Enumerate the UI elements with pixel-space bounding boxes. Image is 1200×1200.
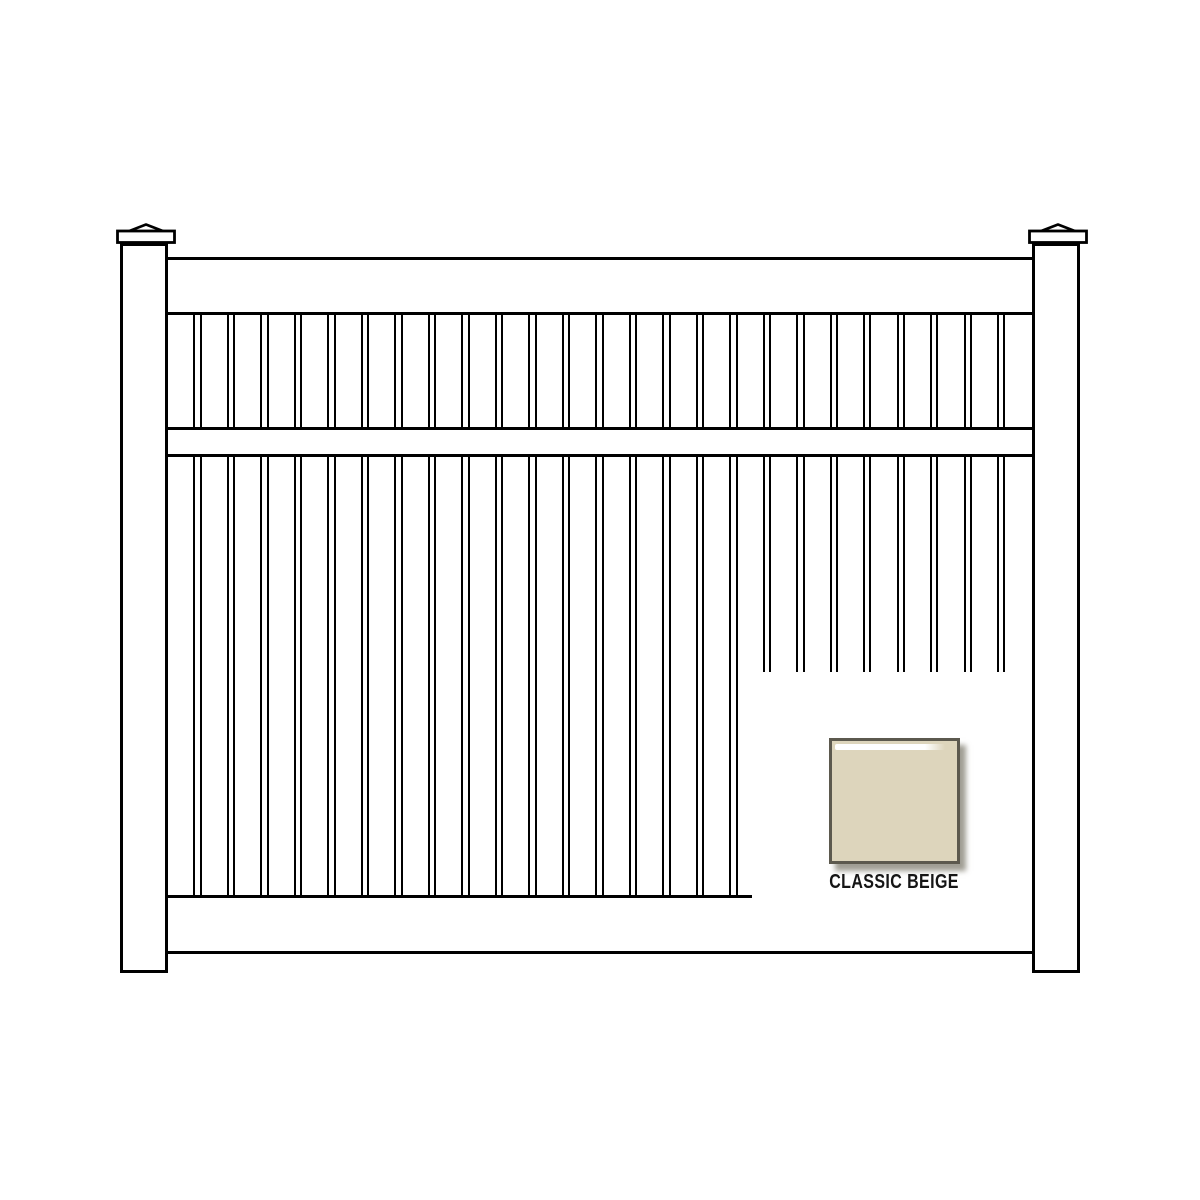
color-swatch-label: CLASSIC BEIGE xyxy=(789,872,1000,892)
picket-gap xyxy=(260,455,268,898)
left-post xyxy=(120,243,168,973)
picket-gap xyxy=(260,312,268,430)
picket-gap xyxy=(528,455,536,898)
right-post-cap-top xyxy=(1030,231,1087,243)
picket-gap xyxy=(964,312,972,430)
picket-gap xyxy=(294,455,302,898)
picket-gap xyxy=(562,312,570,430)
picket-gap xyxy=(696,312,704,430)
picket-gap xyxy=(729,455,737,898)
picket-gap xyxy=(461,455,469,898)
right-post-cap-icon xyxy=(1028,221,1088,245)
picket-gap xyxy=(428,312,436,430)
picket-gap xyxy=(662,455,670,898)
color-swatch-label-text: CLASSIC BEIGE xyxy=(830,872,960,892)
picket-gap xyxy=(763,312,771,430)
picket-gap xyxy=(327,455,335,898)
picket-gap xyxy=(662,312,670,430)
picket-gap xyxy=(193,312,201,430)
picket-gap xyxy=(227,455,235,898)
picket-gap xyxy=(863,312,871,430)
color-swatch xyxy=(829,738,960,864)
picket-gap xyxy=(294,312,302,430)
picket-gap xyxy=(629,455,637,898)
picket-gap xyxy=(729,312,737,430)
picket-gap xyxy=(394,312,402,430)
picket-gap xyxy=(830,312,838,430)
swatch-highlight xyxy=(835,744,945,750)
upper-picket-band xyxy=(168,312,1032,430)
picket-gap xyxy=(528,312,536,430)
picket-gap xyxy=(796,312,804,430)
picket-gap xyxy=(495,455,503,898)
picket-gap xyxy=(461,312,469,430)
picket-gap xyxy=(562,455,570,898)
right-post xyxy=(1032,243,1080,973)
picket-gap xyxy=(696,455,704,898)
picket-gap xyxy=(428,455,436,898)
picket-gap xyxy=(361,312,369,430)
middle-rail xyxy=(166,427,1034,457)
left-post-cap-icon xyxy=(116,221,176,245)
picket-gap xyxy=(997,312,1005,430)
picket-gap xyxy=(193,455,201,898)
fence-product-illustration: CLASSIC BEIGE xyxy=(0,0,1200,1200)
left-post-cap-top xyxy=(118,231,175,243)
picket-gap xyxy=(361,455,369,898)
picket-gap xyxy=(629,312,637,430)
picket-gap xyxy=(327,312,335,430)
top-rail xyxy=(166,257,1034,315)
picket-gap xyxy=(495,312,503,430)
picket-gap xyxy=(930,312,938,430)
picket-gap xyxy=(227,312,235,430)
picket-gap xyxy=(595,312,603,430)
picket-gap xyxy=(394,455,402,898)
picket-gap xyxy=(897,312,905,430)
picket-gap xyxy=(595,455,603,898)
